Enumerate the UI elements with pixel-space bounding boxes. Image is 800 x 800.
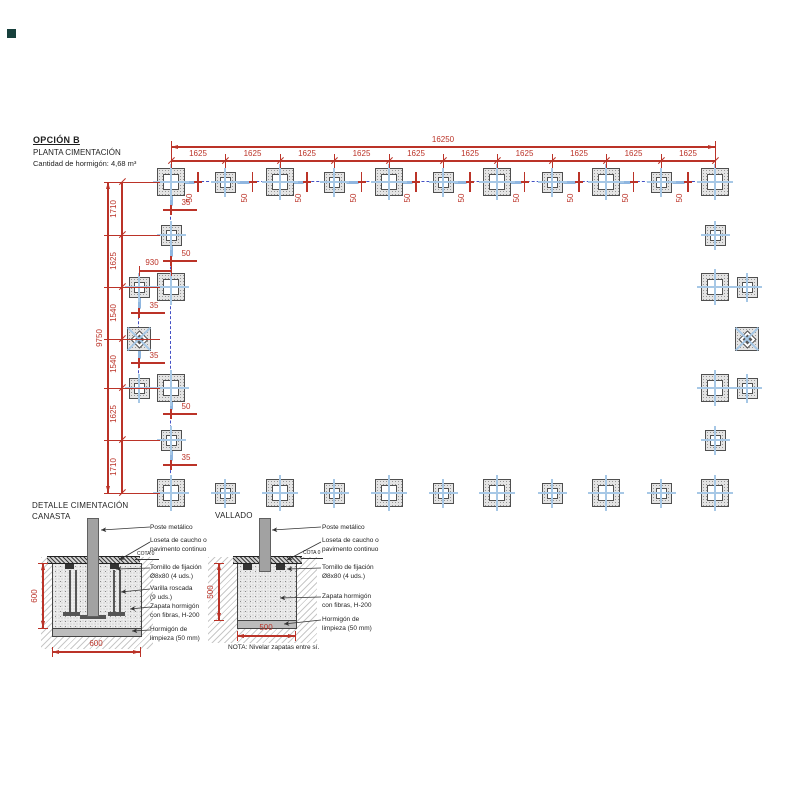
leader-label-line: (9 uds.) — [150, 594, 193, 603]
dim-arrow — [217, 563, 221, 570]
leader-label-line: Loseta de caucho o — [322, 537, 379, 546]
gap-mark-line — [163, 464, 197, 466]
footing-cross — [605, 164, 607, 200]
leader-label-line: limpieza (50 mm) — [322, 625, 372, 634]
drawing-sheet: OPCIÓN B PLANTA CIMENTACIÓN Cantidad de … — [0, 0, 800, 800]
concrete-quantity-note: Cantidad de hormigón: 4,68 m³ — [33, 159, 136, 168]
footing-cross — [660, 479, 662, 508]
dim-seg-label: 1625 — [170, 149, 226, 159]
dim-seg-label: 1625 — [551, 149, 607, 159]
dim-ext — [52, 647, 53, 657]
leader-label-line: Ø8x80 (4 uds.) — [322, 573, 374, 582]
detail-dim-label: 500 — [238, 623, 294, 633]
detail-dim-line — [218, 563, 219, 620]
dim-offset-line — [139, 270, 171, 271]
gap-mark-line — [131, 362, 165, 364]
fixing-bolt — [243, 564, 252, 570]
footing-cross — [551, 479, 553, 508]
dim-seg-label: 1625 — [497, 149, 553, 159]
leader-label-line: pavimento continuo — [322, 546, 379, 555]
anchor-rod — [69, 570, 71, 616]
leader-label-line: Zapata hormigón — [322, 593, 372, 602]
leader-label-vallado: Loseta de caucho opavimento continuo — [322, 537, 379, 555]
gap-mark-label: 50 — [294, 170, 304, 226]
dim-seg-label: 1625 — [109, 386, 119, 442]
rod-base-plate — [63, 612, 80, 616]
footing-cross — [170, 164, 172, 200]
dim-left-total-label: 9750 — [95, 310, 105, 366]
footing-cross — [714, 370, 716, 406]
gap-mark-line — [131, 312, 165, 314]
leader-label-canasta: Tornillo de fijaciónØ8x80 (4 uds.) — [150, 564, 202, 582]
gap-mark-tick — [466, 181, 474, 183]
fixing-bolt — [65, 564, 74, 569]
footing-cross — [224, 168, 226, 197]
gap-mark-label: 50 — [566, 170, 576, 226]
dim-seg-label: 1625 — [388, 149, 444, 159]
leader-label-line: Hormigón de — [150, 626, 200, 635]
gap-mark-tick — [194, 181, 202, 183]
leader-label-line: Tornillo de fijación — [322, 564, 374, 573]
detail-dim-label: 600 — [68, 639, 124, 649]
footing-cross — [224, 479, 226, 508]
footing-cross — [333, 479, 335, 508]
cota-line — [135, 559, 159, 560]
dim-ext — [38, 628, 48, 629]
leader-label-vallado: Tornillo de fijaciónØ8x80 (4 uds.) — [322, 564, 374, 582]
footing-cross — [388, 164, 390, 200]
footing-cross — [746, 374, 748, 403]
dim-seg-label: 1625 — [279, 149, 335, 159]
gap-mark-label: 50 — [457, 170, 467, 226]
footing-cross — [279, 164, 281, 200]
dim-seg-label: 1625 — [442, 149, 498, 159]
gap-mark-label: 50 — [158, 402, 214, 412]
dim-top-total-label: 16250 — [415, 135, 471, 145]
footing-cross — [170, 475, 172, 511]
rod-base-plate — [108, 612, 125, 616]
dim-seg-label: 1540 — [109, 285, 119, 341]
anchor-rod — [113, 570, 115, 616]
gap-mark-label: 50 — [675, 170, 685, 226]
gap-mark-label: 50 — [349, 170, 359, 226]
footing-cross — [714, 269, 716, 305]
dim-offset-label: 930 — [124, 258, 180, 268]
dim-seg-label: 1625 — [606, 149, 662, 159]
dim-seg-label: 1710 — [109, 439, 119, 495]
leader-label-line: limpieza (50 mm) — [150, 635, 200, 644]
gap-mark-tick — [575, 181, 583, 183]
cota-label: COTA 0 — [303, 550, 320, 556]
leader-label-line: Zapata hormigón — [150, 603, 200, 612]
gap-mark-label: 35 — [126, 301, 182, 311]
dim-seg-label: 1625 — [109, 233, 119, 289]
dim-ext — [140, 647, 141, 657]
detail-dim-line — [42, 563, 43, 628]
footing-cross — [279, 475, 281, 511]
gap-mark-label: 50 — [512, 170, 522, 226]
leader-label-line: pavimento continuo — [150, 546, 207, 555]
leader-label-vallado: Hormigón delimpieza (50 mm) — [322, 616, 372, 634]
footing-cross — [714, 475, 716, 511]
leader-label-line: con fibras, H-200 — [322, 602, 372, 611]
leader-label-line: Tornillo de fijación — [150, 564, 202, 573]
footing-cross — [170, 221, 172, 250]
leader-label-canasta: Hormigón delimpieza (50 mm) — [150, 626, 200, 644]
footing-cross — [388, 475, 390, 511]
corner-mark — [7, 29, 16, 38]
leader-label-vallado: Zapata hormigóncon fibras, H-200 — [322, 593, 372, 611]
footing-cross — [442, 479, 444, 508]
cota-line — [301, 558, 323, 559]
leader-label-canasta: Loseta de caucho opavimento continuo — [150, 537, 207, 555]
gap-mark-label: 50 — [403, 170, 413, 226]
gap-mark-tick — [684, 181, 692, 183]
limpieza-layer — [52, 628, 142, 637]
gap-mark-label: 35 — [158, 453, 214, 463]
footing-cross — [714, 426, 716, 455]
dim-seg-label: 1625 — [225, 149, 281, 159]
metal-post — [259, 518, 271, 572]
dim-ext — [38, 563, 48, 564]
metal-post — [87, 518, 99, 617]
detail-dim-line — [237, 635, 295, 636]
dim-seg-label: 1710 — [109, 181, 119, 237]
gap-mark-tick — [412, 181, 420, 183]
anchor-rod — [75, 570, 77, 616]
detail-dim-label: 600 — [30, 568, 40, 624]
detail-vallado-title: VALLADO — [215, 511, 253, 520]
footing-cross — [496, 475, 498, 511]
footing-cross — [714, 164, 716, 200]
footing-cross — [714, 221, 716, 250]
leveling-note: NOTA: Nivelar zapatas entre sí. — [228, 644, 319, 651]
dim-arrow — [41, 563, 45, 570]
footing-cross — [333, 168, 335, 197]
leader-label-line: con fibras, H-200 — [150, 612, 200, 621]
gap-mark-label: 35 — [158, 198, 214, 208]
dim-seg-label: 1540 — [109, 336, 119, 392]
leader-label-line: Poste metálico — [322, 524, 365, 533]
dim-seg-label: 1625 — [660, 149, 716, 159]
dim-arrow — [237, 634, 244, 638]
fixing-bolt — [276, 564, 285, 570]
detail-canasta-title2: CANASTA — [32, 512, 71, 521]
leader-label-line: Hormigón de — [322, 616, 372, 625]
detail-canasta-title: DETALLE CIMENTACIÓN — [32, 501, 128, 510]
dim-ext — [295, 631, 296, 641]
fixing-bolt — [110, 564, 119, 569]
leader-label-line: Ø8x80 (4 uds.) — [150, 573, 202, 582]
footing-cross — [605, 475, 607, 511]
plan-subtitle: PLANTA CIMENTACIÓN — [33, 148, 121, 157]
footing-cross — [170, 370, 172, 406]
leader-label-canasta: Varilla roscada(9 uds.) — [150, 585, 193, 603]
gap-mark-tick — [303, 181, 311, 183]
dim-arrow — [52, 650, 59, 654]
anchor-rod — [119, 570, 121, 616]
footing-cross — [442, 168, 444, 197]
leader-label-canasta: Poste metálico — [150, 524, 193, 533]
detail-dim-label: 500 — [206, 564, 216, 620]
dim-arrow — [171, 145, 178, 149]
footing-cross — [170, 426, 172, 455]
gap-mark-label: 50 — [240, 170, 250, 226]
footing-cross — [496, 164, 498, 200]
leader-label-line: Varilla roscada — [150, 585, 193, 594]
cota-label: COTA 0 — [137, 551, 154, 557]
footing-cross — [551, 168, 553, 197]
footing-cross — [746, 273, 748, 302]
leader-label-canasta: Zapata hormigóncon fibras, H-200 — [150, 603, 200, 621]
leader-label-vallado: Poste metálico — [322, 524, 365, 533]
detail-dim-line — [52, 651, 140, 652]
plan-area: 5050505050505050505035503535503516250162… — [0, 0, 800, 800]
footing-cross — [660, 168, 662, 197]
plan-option-title: OPCIÓN B — [33, 135, 80, 145]
leader-label-line: Poste metálico — [150, 524, 193, 533]
gap-mark-label: 50 — [621, 170, 631, 226]
leader-label-line: Loseta de caucho o — [150, 537, 207, 546]
dim-seg-label: 1625 — [334, 149, 390, 159]
gap-mark-label: 35 — [126, 351, 182, 361]
dim-top-total-line — [171, 146, 715, 147]
gap-mark-line — [163, 413, 197, 415]
